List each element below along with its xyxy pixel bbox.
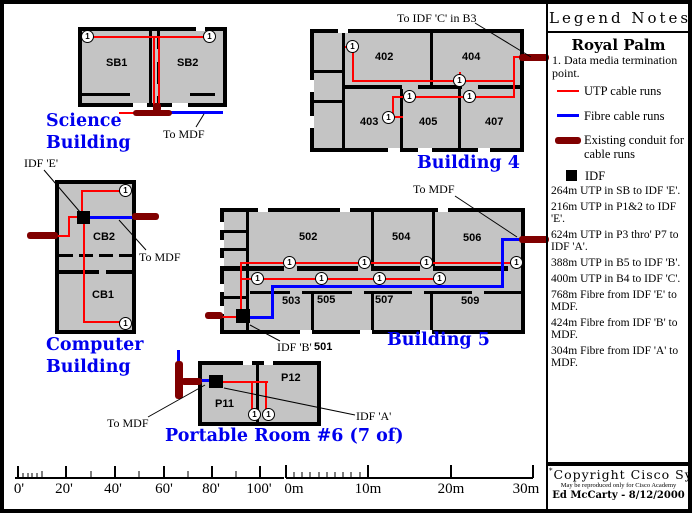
door-gap [402,85,418,89]
computer-building-floorplan [55,180,136,334]
building-name: Computer Building [46,334,144,378]
idf-square [236,309,250,323]
fibre-cable [89,216,133,219]
copyright-line: *Copyright Cisco Systems [549,467,688,482]
wall [149,31,152,103]
termination-number: 1 [424,258,428,267]
door-gap [300,330,312,334]
room-label: SB2 [177,57,198,69]
wall [79,254,93,257]
room-label: 506 [463,232,481,244]
termination-point: 1 [119,317,132,330]
termination-point: 1 [382,111,395,124]
utp-cable [81,190,121,192]
wall [224,266,521,271]
room-label: 504 [392,231,410,243]
termination-number: 1 [207,32,211,41]
utp-cable [221,316,237,318]
idf-square [209,375,223,388]
termination-point: 1 [510,256,523,269]
termination-number: 1 [266,410,270,419]
idf-label: IDF 'E' [24,156,58,171]
network-cabling-diagram: 1 1 SB1 SB2 To MDF Science Building 1 1 … [0,0,692,513]
wall [250,291,290,294]
to-mdf-label: To MDF [139,250,181,265]
termination-number: 1 [467,92,471,101]
fibre-cable [171,111,223,114]
cable-notes-list: 264m UTP in SB to IDF 'E'. 216m UTP in P… [551,185,686,373]
termination-number: 1 [407,92,411,101]
utp-cable [513,57,515,98]
door-gap [264,361,273,365]
room-label: SB1 [106,57,127,69]
termination-point: 1 [251,272,264,285]
door-gap [172,103,188,107]
utp-cable [81,190,83,213]
wall [190,93,215,96]
idf-label: IDF 'B' [277,340,312,355]
termination-number: 1 [457,76,461,85]
utp-cable [88,36,211,38]
legend-item-label: Existing conduit for cable runs [584,133,684,161]
cable-note: 424m Fibre from IDF 'B' to MDF. [551,317,686,341]
building-name: Portable Room #6 (7 of) [165,425,404,447]
cable-note: 400m UTP in B4 to IDF 'C'. [551,273,686,285]
door-gap [360,330,372,334]
wall [345,85,520,89]
utp-cable [251,383,253,411]
room-label: P11 [215,398,234,410]
wall [314,100,342,103]
conduit [519,54,549,61]
termination-point: 1 [420,256,433,269]
termination-number: 1 [255,274,259,283]
utp-cable [83,321,121,323]
legend-item-label: Fibre cable runs [584,109,665,123]
wall [106,270,132,274]
legend-title: Legend Notes [549,9,688,27]
wall [484,291,521,294]
wall [371,294,374,330]
conduit [132,213,159,220]
termination-point: 1 [81,30,94,43]
meter-scale-label: 0m [284,481,303,498]
conduit-destination-label: To IDF 'C' in B3 [397,11,477,26]
termination-point: 1 [283,256,296,269]
door-gap [220,284,224,292]
room-label: 405 [419,116,437,128]
termination-number: 1 [350,42,354,51]
termination-number: 1 [123,319,127,328]
termination-number: 1 [252,410,256,419]
wall [342,33,345,148]
room-label: 404 [462,51,480,63]
utp-cable [240,262,242,312]
conduit [519,236,549,243]
meter-scale-label: 20m [438,481,465,498]
door-gap [388,148,400,152]
conduit-sample [555,137,581,144]
door-gap [438,208,448,212]
termination-number: 1 [437,274,441,283]
termination-point: 1 [403,90,416,103]
utp-cable [158,38,160,110]
utp-cable [240,262,519,264]
room-label: 507 [375,294,393,306]
termination-point: 1 [346,40,359,53]
termination-point: 1 [262,408,275,421]
building-name: Science Building [46,110,134,154]
door-gap [310,80,314,92]
room-label: 509 [461,295,479,307]
door-gap [220,258,224,266]
utp-cable [265,383,267,411]
wall [430,33,433,87]
termination-point: 1 [358,256,371,269]
conduit [153,103,161,112]
fibre-cable [501,240,504,288]
fibre-cable [271,285,504,288]
building-name: Building 5 [387,329,490,351]
wall [59,254,73,257]
utp-cable [153,38,155,110]
idf-square-sample [566,170,577,181]
door-gap [196,27,205,31]
room-label: 505 [317,294,335,306]
wall [59,270,99,274]
termination-point: 1 [119,184,132,197]
conduit [27,232,58,239]
termination-point: 1 [248,408,261,421]
door-gap [243,361,252,365]
feet-scale-label: 100' [246,481,271,498]
door-gap [220,222,224,230]
termination-number: 1 [377,274,381,283]
footer: *Copyright Cisco Systems May be reproduc… [549,467,688,501]
author-line: Ed McCarty - 8/12/2000 [549,490,688,501]
termination-number: 1 [319,274,323,283]
wall [432,212,435,266]
legend-item-label: UTP cable runs [584,84,661,98]
license-line: May be reproduced only for Cisco Academy [549,482,688,489]
utp-cable [83,222,85,323]
wall [99,254,113,257]
room-label: P12 [281,372,301,384]
termination-number: 1 [85,32,89,41]
wall [224,230,246,233]
idf-label: IDF 'A' [356,409,391,424]
door-gap [340,208,350,212]
building-name: Building 4 [417,152,520,174]
to-mdf-label: To MDF [163,127,205,142]
cable-note: 304m Fibre from IDF 'A' to MDF. [551,345,686,369]
cable-note: 216m UTP in P1&2 to IDF 'E'. [551,201,686,225]
door-gap [338,29,348,33]
wall [311,294,314,330]
wall [224,248,246,251]
conduit [133,110,172,116]
conduit [181,378,202,385]
utp-cable [352,48,354,82]
termination-point: 1 [315,272,328,285]
copyright-text: Copyright Cisco Systems [554,467,692,482]
wall [119,254,132,257]
utp-cable [240,278,442,280]
room-label: CB2 [93,231,115,243]
cable-note: 388m UTP in B5 to IDF 'B'. [551,257,686,269]
fibre-cable [271,287,274,319]
utp-cable [352,80,515,82]
feet-scale-label: 60' [155,481,173,498]
utp-cable [68,217,70,237]
termination-point: 1 [453,74,466,87]
cable-note: 624m UTP in P3 thro' P7 to IDF 'A'. [551,229,686,253]
room-label: 402 [375,51,393,63]
room-label: 407 [485,116,503,128]
door-gap [462,85,478,89]
cable-note: 768m Fibre from IDF 'E' to MDF. [551,289,686,313]
cable-note: 264m UTP in SB to IDF 'E'. [551,185,686,197]
to-mdf-label: To MDF [107,416,149,431]
meter-scale-label: 10m [355,481,382,498]
site-name: Royal Palm [549,36,688,54]
wall [314,70,342,73]
legend-panel-border [546,4,548,509]
footer-divider [548,462,688,466]
door-gap [220,240,224,248]
termination-number: 1 [123,186,127,195]
room-label: CB1 [92,289,114,301]
termination-number: 1 [287,258,291,267]
fibre-line-sample [557,114,579,117]
to-mdf-label: To MDF [413,182,455,197]
utp-cable [222,381,268,383]
termination-number: 1 [514,258,518,267]
legend-note: 1. Data media termination point. [552,54,682,80]
room-label: 403 [360,116,378,128]
feet-scale-label: 20' [55,481,73,498]
door-gap [133,103,147,107]
door-gap [258,208,268,212]
feet-scale-label: 40' [104,481,122,498]
utp-cable [394,116,403,118]
room-label: 502 [299,231,317,243]
termination-point: 1 [433,272,446,285]
wall [82,93,130,96]
termination-point: 1 [203,30,216,43]
legend-title-divider [548,31,688,33]
room-label: 503 [282,295,300,307]
room-label: 501 [314,341,332,353]
meter-scale-label: 30m [513,481,540,498]
feet-scale-label: 80' [202,481,220,498]
termination-point: 1 [463,90,476,103]
termination-number: 1 [386,113,390,122]
conduit [205,312,223,319]
wall [371,212,374,266]
utp-line-sample [557,90,579,92]
feet-scale-label: 0' [14,481,24,498]
wall [224,296,246,299]
termination-point: 1 [373,272,386,285]
termination-number: 1 [362,258,366,267]
legend-item-label: IDF [585,169,605,183]
door-gap [310,116,314,128]
idf-square [77,211,90,224]
wall [430,294,433,330]
